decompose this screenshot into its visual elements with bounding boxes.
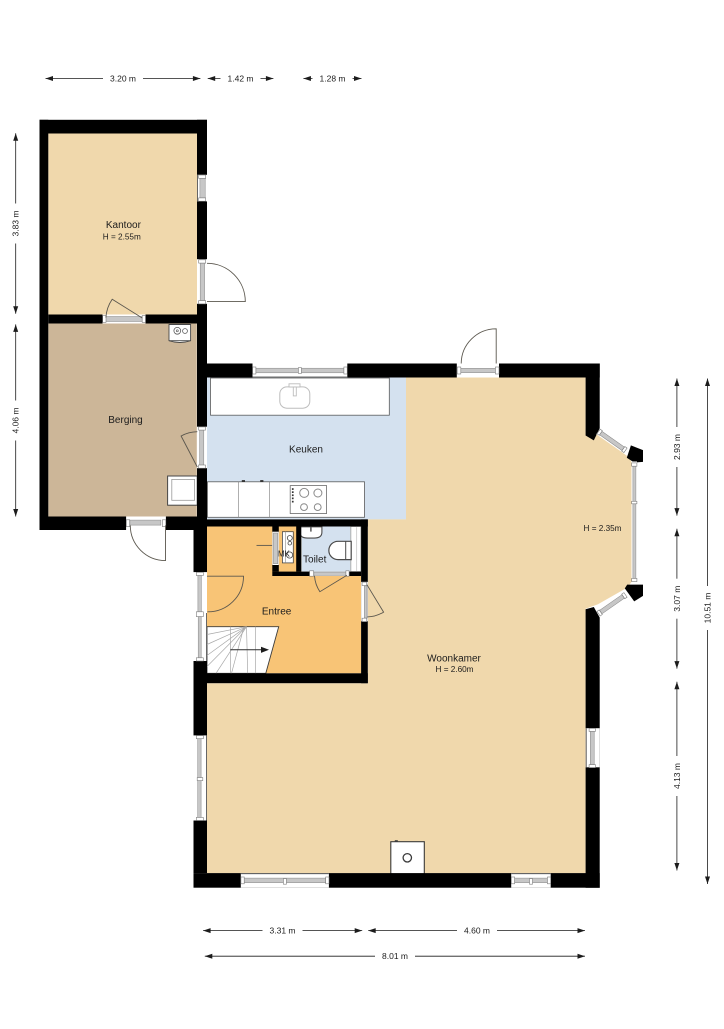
svg-text:Toilet: Toilet <box>303 555 327 566</box>
svg-text:H = 2.55m: H = 2.55m <box>103 233 141 242</box>
svg-text:H = 2.35m: H = 2.35m <box>584 524 622 533</box>
svg-text:4.60 m: 4.60 m <box>464 926 490 936</box>
svg-text:Kantoor: Kantoor <box>106 220 142 231</box>
svg-text:3.07 m: 3.07 m <box>672 586 682 612</box>
svg-text:3.20 m: 3.20 m <box>110 74 136 84</box>
svg-text:Berging: Berging <box>108 415 142 426</box>
svg-text:3.31 m: 3.31 m <box>270 926 296 936</box>
svg-text:8.01 m: 8.01 m <box>382 951 408 961</box>
svg-text:1.42 m: 1.42 m <box>228 74 254 84</box>
svg-text:10.51 m: 10.51 m <box>703 593 713 624</box>
svg-text:2.93 m: 2.93 m <box>672 434 682 460</box>
svg-text:4.13 m: 4.13 m <box>672 763 682 789</box>
svg-text:MK: MK <box>278 549 291 558</box>
svg-text:3.83 m: 3.83 m <box>11 211 21 237</box>
svg-text:H = 2.60m: H = 2.60m <box>436 665 474 674</box>
svg-text:1.28 m: 1.28 m <box>320 74 346 84</box>
svg-text:Woonkamer: Woonkamer <box>427 654 481 665</box>
svg-text:Keuken: Keuken <box>289 445 323 456</box>
svg-text:Entree: Entree <box>262 607 292 618</box>
svg-text:4.06 m: 4.06 m <box>11 408 21 434</box>
